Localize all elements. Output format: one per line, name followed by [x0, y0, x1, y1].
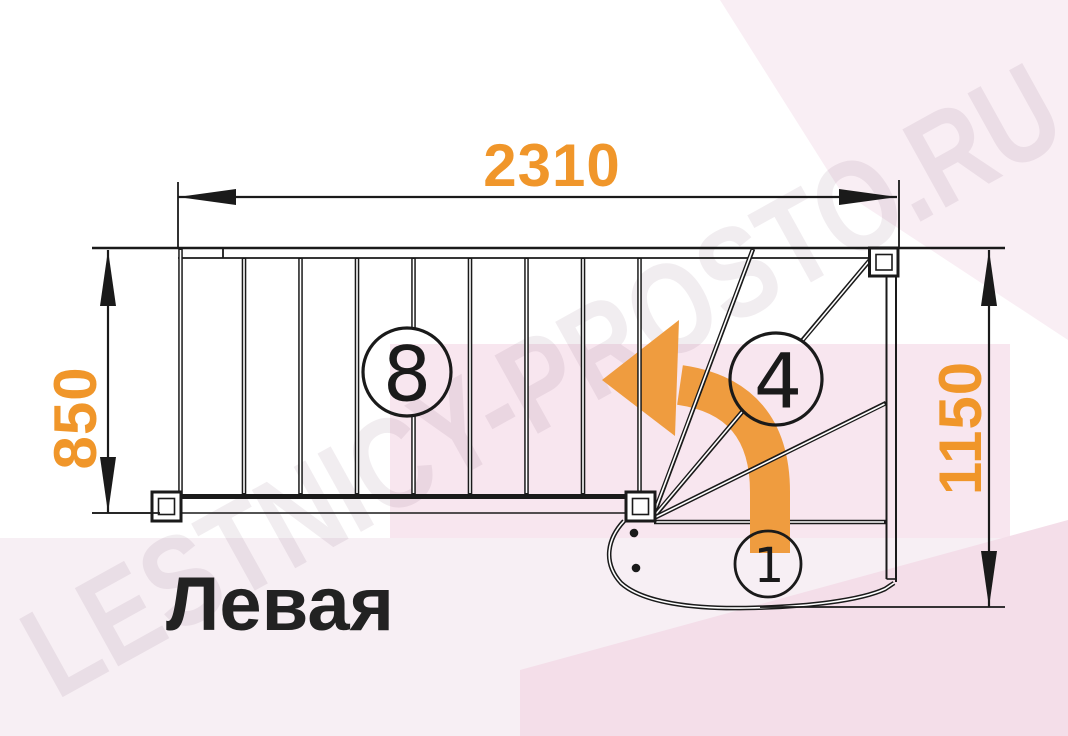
baluster-dot [630, 529, 639, 538]
stair-plan-diagram: LESTNICY-PROSTO.RU [0, 0, 1068, 736]
page-title: Левая [166, 562, 394, 647]
newel-post-corner-inner [876, 255, 892, 271]
newel-post-left-inner [159, 499, 175, 515]
dimension-value-top: 2310 [483, 132, 620, 199]
dimension-value-left: 850 [42, 366, 109, 469]
step-number-straight: 8 [383, 330, 431, 419]
step-number-winder: 4 [754, 337, 802, 426]
dimension-value-right: 1150 [927, 361, 994, 495]
newel-post-center-inner [633, 499, 649, 515]
step-number-first: 1 [754, 538, 785, 594]
diagram-canvas: LESTNICY-PROSTO.RU [0, 0, 1068, 736]
baluster-dot [632, 564, 641, 573]
